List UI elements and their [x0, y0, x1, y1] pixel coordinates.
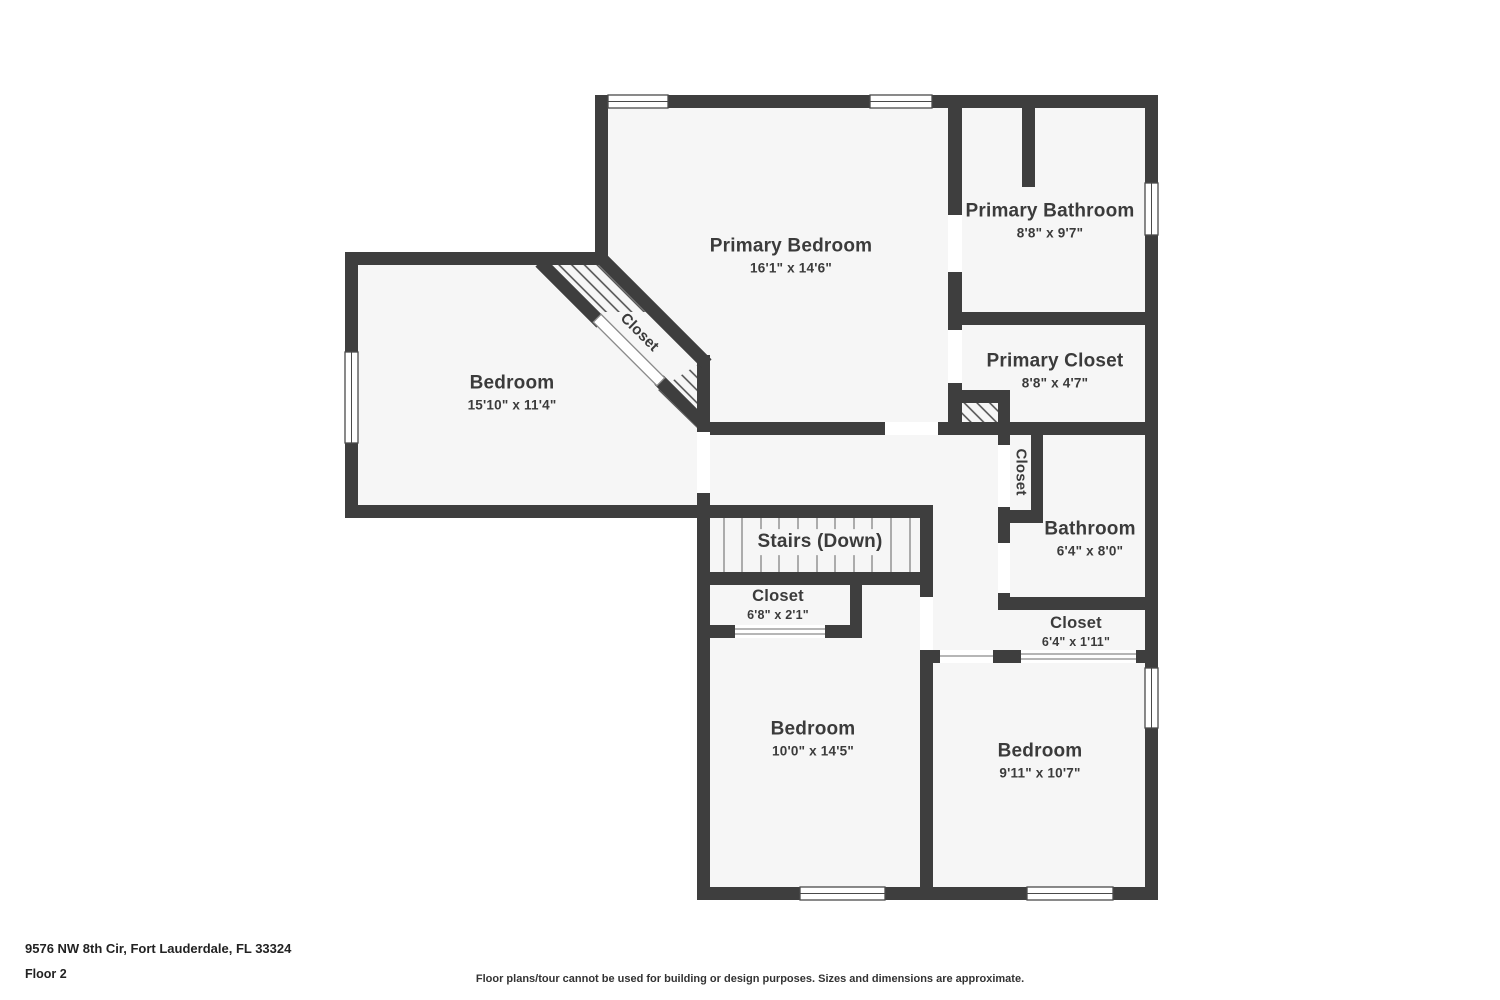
disclaimer-text: Floor plans/tour cannot be used for buil… — [476, 973, 1024, 985]
floor-plan-page: Primary Bedroom 16'1" x 14'6" Primary Ba… — [0, 0, 1500, 1000]
floor-plan-drawing — [0, 0, 1500, 1000]
property-address: 9576 NW 8th Cir, Fort Lauderdale, FL 333… — [25, 941, 291, 956]
floor-label: Floor 2 — [25, 967, 67, 981]
